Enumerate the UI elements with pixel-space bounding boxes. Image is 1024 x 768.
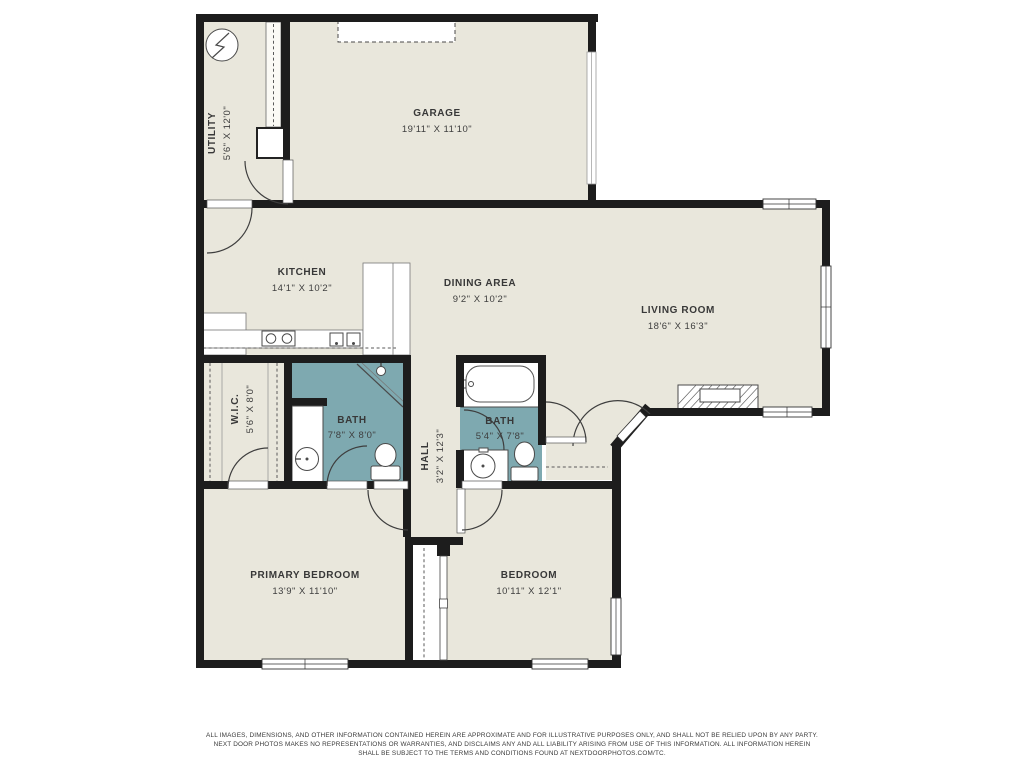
drain-icon: [482, 465, 485, 468]
drain-icon: [352, 342, 355, 345]
utility-kitchen-door-frame: [207, 200, 252, 208]
bath1-label: BATH: [337, 415, 366, 426]
drain-icon: [306, 458, 309, 461]
utility-appliance: [257, 128, 287, 158]
wic-dims: 5'6" X 8'0": [245, 385, 256, 434]
hall-label: HALL: [420, 441, 431, 470]
bedroom-door-frame: [462, 481, 502, 489]
drain-icon: [335, 342, 338, 345]
entry-foyer-floor: [546, 357, 616, 480]
toilet-tank: [371, 466, 400, 480]
coat-closet-door-leaf: [546, 437, 586, 443]
bedroom-door-leaf: [457, 489, 465, 533]
kitchen-label: KITCHEN: [278, 267, 327, 278]
shower-head-icon: [377, 367, 386, 376]
dining-dims: 9'2" X 10'2": [453, 294, 507, 305]
kitchen-dims: 14'1" X 10'2": [272, 283, 332, 294]
disclaimer-line-3: SHALL BE SUBJECT TO THE TERMS AND CONDIT…: [0, 749, 1024, 758]
bedroom-dims: 10'11" X 12'1": [496, 586, 561, 597]
toilet-bowl: [375, 444, 396, 467]
firebox: [700, 389, 740, 402]
living-label: LIVING ROOM: [641, 305, 715, 316]
bath2-label: BATH: [485, 416, 514, 427]
range: [262, 331, 295, 346]
garage-label: GARAGE: [413, 108, 461, 119]
wic-label: W.I.C.: [230, 394, 241, 425]
hall-dims: 3'2" X 12'3": [435, 429, 446, 483]
bedroom-closet-floor: [412, 545, 438, 662]
bath2-dims: 5'4" X 7'8": [476, 431, 525, 442]
disclaimer-line-2: NEXT DOOR PHOTOS MAKES NO REPRESENTATION…: [0, 740, 1024, 749]
faucet-icon: [479, 448, 488, 452]
bath1-stub-wall: [292, 398, 327, 406]
bedroom-label: BEDROOM: [501, 570, 557, 581]
disclaimer-line-1: ALL IMAGES, DIMENSIONS, AND OTHER INFORM…: [0, 731, 1024, 740]
primary-bedroom-label: PRIMARY BEDROOM: [250, 570, 360, 581]
utility-label: UTILITY: [207, 112, 218, 154]
toilet-bowl: [515, 442, 535, 466]
garage-dims: 19'11" X 11'10": [402, 124, 472, 135]
water-heater-icon: [206, 29, 238, 61]
utility-dims: 5'6" X 12'0": [222, 106, 233, 160]
floor-plan-page: GARAGE 19'11" X 11'10" KITCHEN 14'1" X 1…: [0, 0, 1024, 768]
bath1-vanity: [292, 406, 323, 484]
living-dims: 18'6" X 16'3": [648, 321, 708, 332]
wic-floor: [200, 357, 288, 485]
dining-label: DINING AREA: [444, 278, 516, 289]
primary-bedroom-dims: 13'9" X 11'10": [272, 586, 337, 597]
disclaimer: ALL IMAGES, DIMENSIONS, AND OTHER INFORM…: [0, 731, 1024, 758]
bath1-dims: 7'8" X 8'0": [328, 430, 377, 441]
wic-door-frame: [228, 481, 268, 489]
utility-door-leaf: [283, 160, 293, 203]
kitchen-peninsula: [363, 263, 410, 355]
toilet-tank: [511, 467, 538, 481]
garage-door: [338, 21, 455, 42]
closet-bifold-pivot: [440, 599, 448, 608]
floor-plan-drawing: GARAGE 19'11" X 11'10" KITCHEN 14'1" X 1…: [0, 0, 1024, 768]
primary-door-frame: [374, 481, 408, 489]
utility-garage-divider: [281, 14, 290, 128]
bath1-door-frame: [327, 481, 367, 489]
